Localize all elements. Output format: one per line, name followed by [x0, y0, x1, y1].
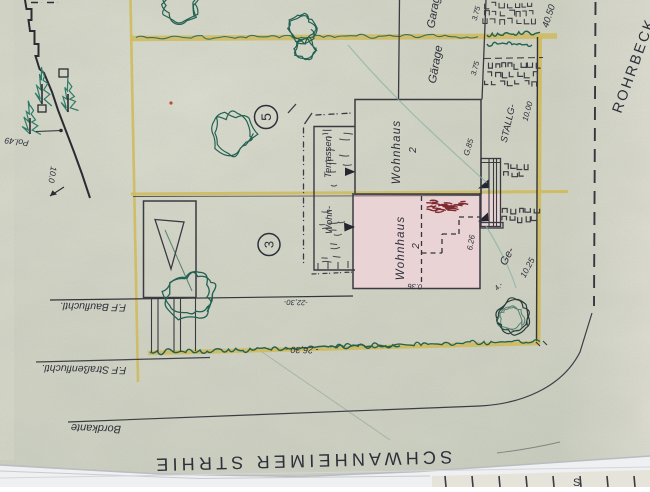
- svg-text:0.36: 0.36: [407, 282, 423, 292]
- svg-text:5: 5: [258, 113, 274, 121]
- svg-text:F.F Baufluchtl.: F.F Baufluchtl.: [60, 300, 126, 314]
- svg-text:Wohnhaus: Wohnhaus: [391, 120, 403, 185]
- svg-text:S: S: [573, 477, 580, 487]
- svg-text:Bordkante: Bordkante: [71, 421, 122, 435]
- svg-text:3: 3: [262, 241, 277, 248]
- svg-text:2: 2: [408, 147, 419, 154]
- svg-text:Wohn-: Wohn-: [324, 206, 335, 234]
- svg-text:Terrassen: Terrassen: [323, 136, 334, 178]
- svg-text:-22,30-: -22,30-: [283, 298, 307, 307]
- svg-text:2: 2: [411, 243, 422, 250]
- svg-text:Wohnhaus: Wohnhaus: [395, 216, 407, 281]
- svg-text:- 26,30 -: - 26,30 -: [285, 345, 319, 356]
- svg-text:F.F Straßenfluchtl.: F.F Straßenfluchtl.: [41, 362, 126, 376]
